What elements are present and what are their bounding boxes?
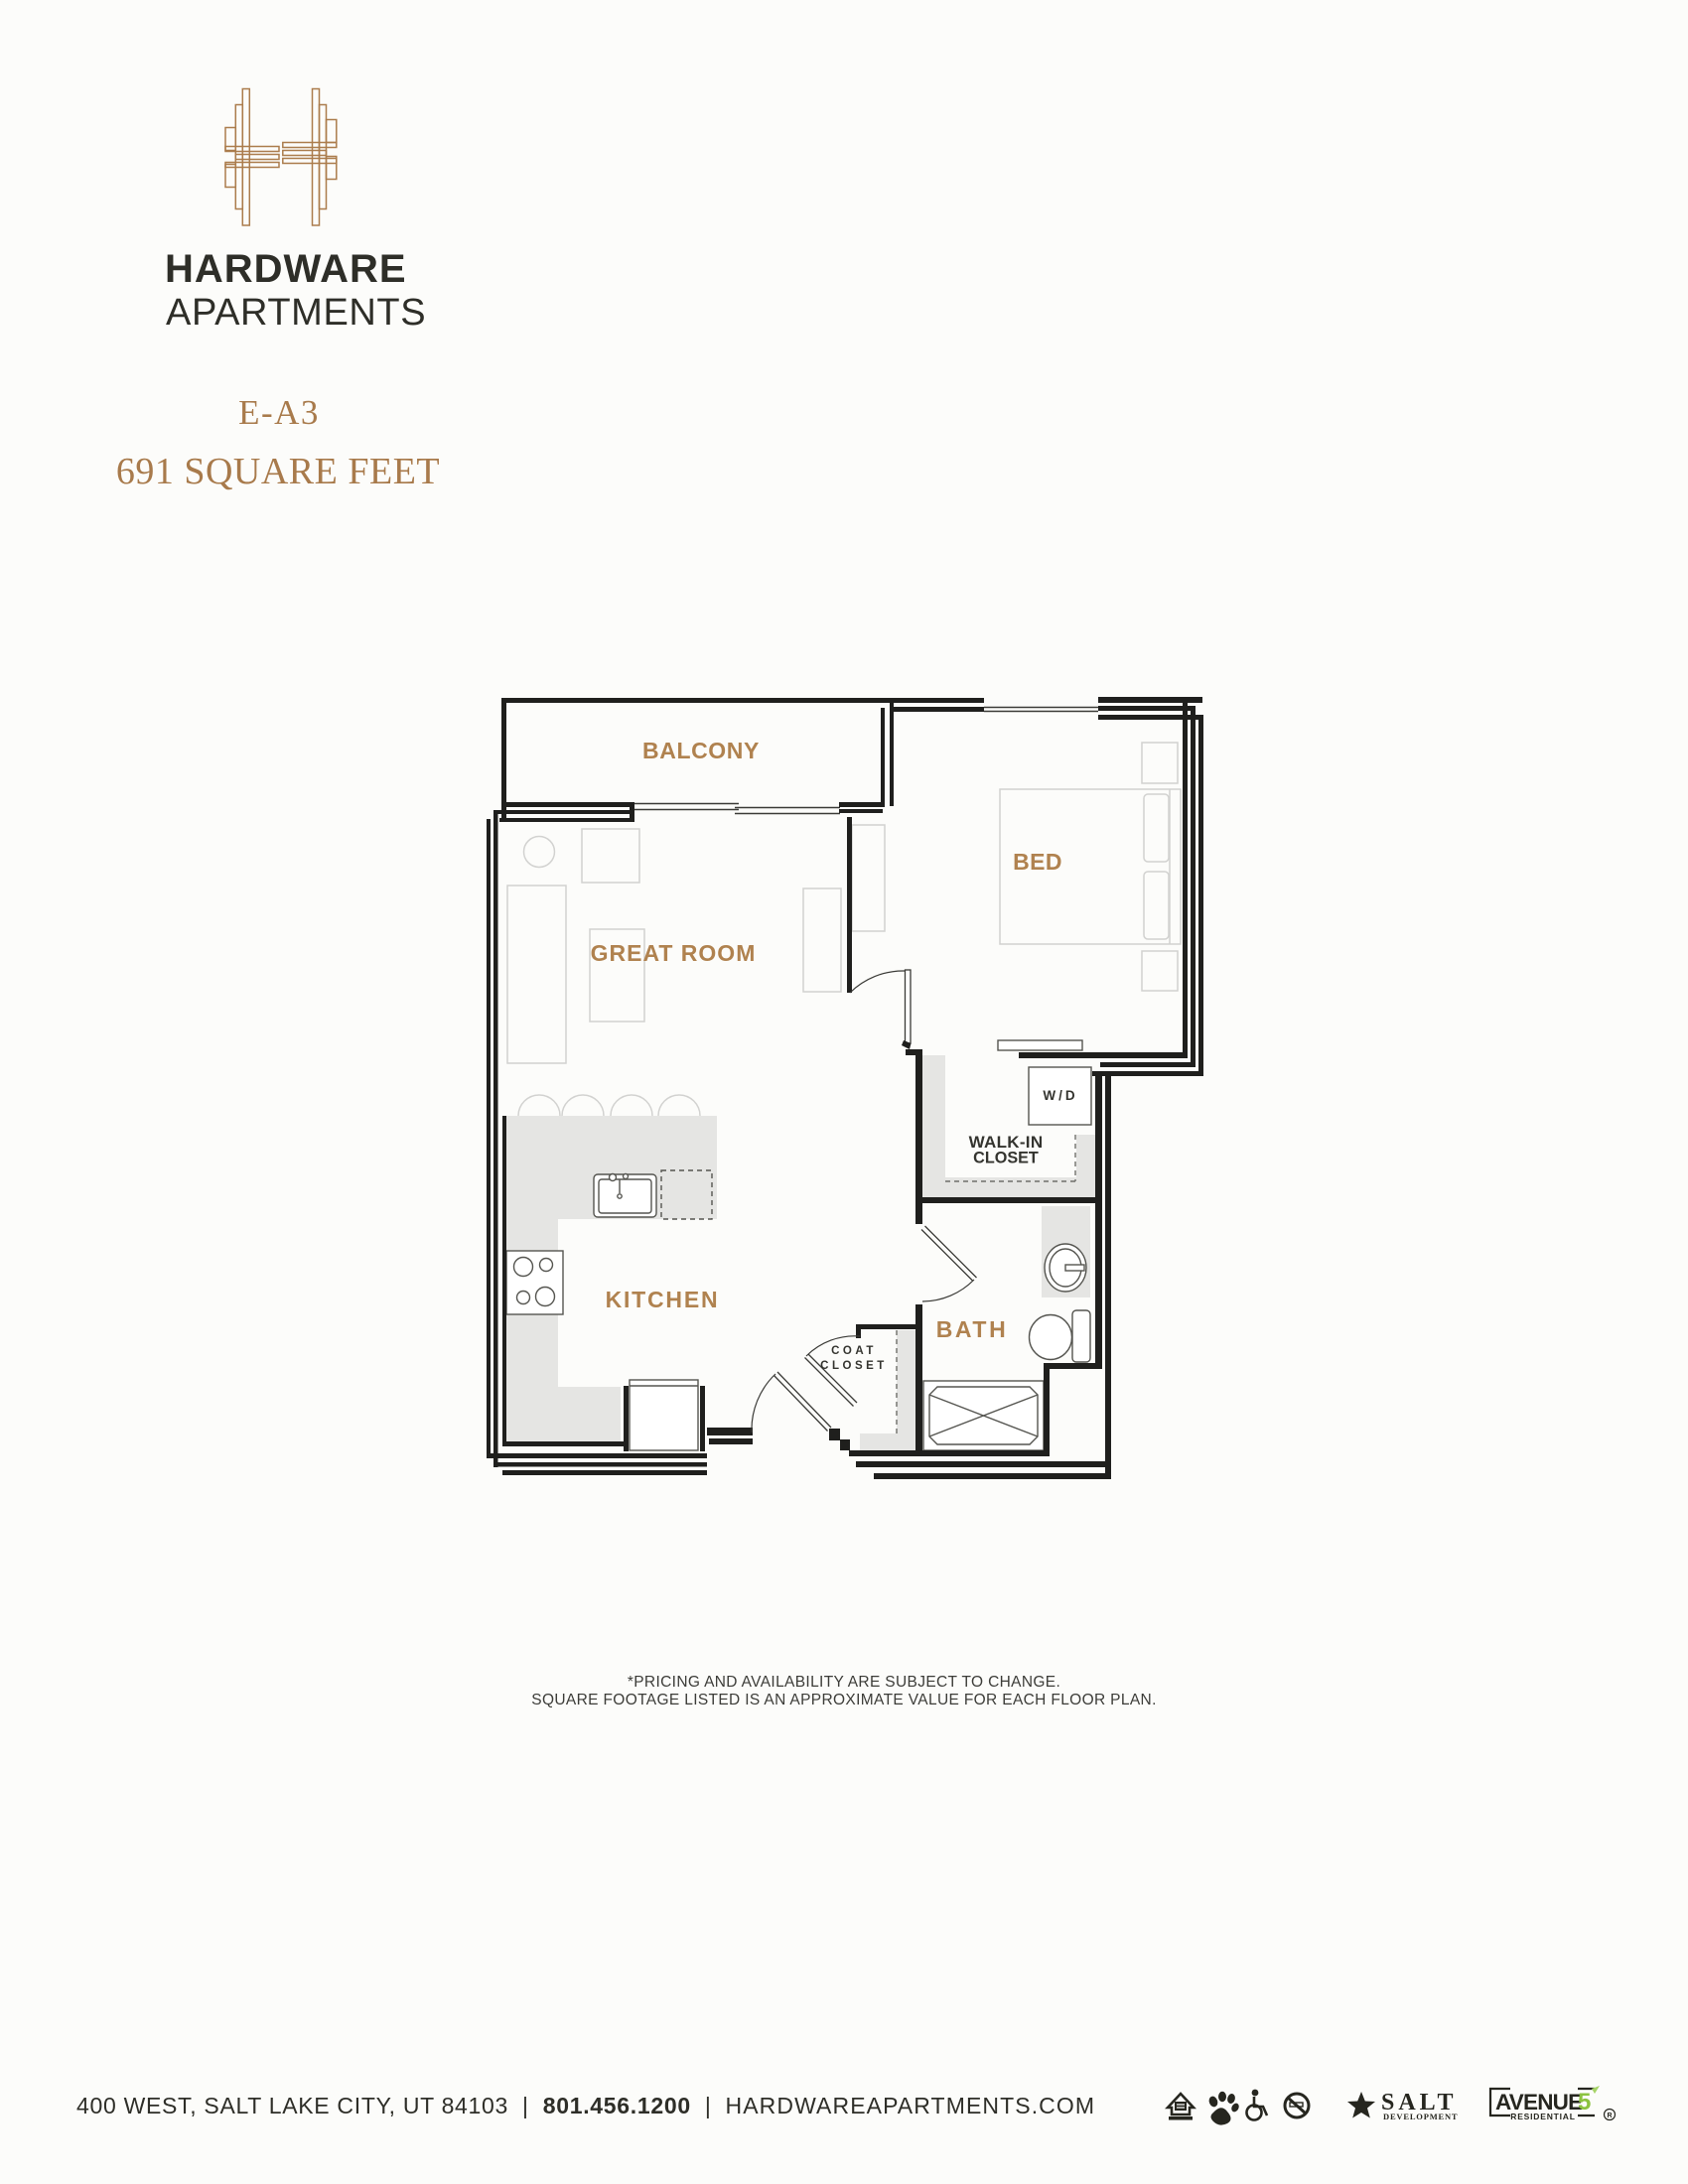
svg-text:691 SQUARE FEET: 691 SQUARE FEET bbox=[116, 451, 440, 492]
svg-text:W/D: W/D bbox=[1043, 1088, 1077, 1103]
svg-text:RESIDENTIAL: RESIDENTIAL bbox=[1510, 2112, 1575, 2121]
svg-text:HARDWARE: HARDWARE bbox=[165, 247, 407, 291]
svg-text:BATH: BATH bbox=[936, 1316, 1009, 1342]
svg-text:APARTMENTS: APARTMENTS bbox=[166, 292, 426, 334]
svg-text:E-A3: E-A3 bbox=[238, 393, 320, 432]
svg-text:400 WEST, SALT LAKE CITY, UT 8: 400 WEST, SALT LAKE CITY, UT 84103|801.4… bbox=[76, 2093, 1095, 2118]
svg-text:CLOSET: CLOSET bbox=[820, 1360, 888, 1372]
svg-text:BED: BED bbox=[1013, 849, 1062, 875]
svg-text:SQUARE FOOTAGE LISTED IS AN AP: SQUARE FOOTAGE LISTED IS AN APPROXIMATE … bbox=[531, 1692, 1156, 1708]
svg-text:CLOSET: CLOSET bbox=[973, 1150, 1039, 1167]
svg-text:KITCHEN: KITCHEN bbox=[606, 1287, 720, 1312]
svg-text:*PRICING AND AVAILABILITY ARE: *PRICING AND AVAILABILITY ARE SUBJECT TO… bbox=[628, 1674, 1060, 1691]
svg-text:5: 5 bbox=[1578, 2089, 1591, 2116]
svg-text:R: R bbox=[1607, 2113, 1612, 2119]
svg-text:GREAT ROOM: GREAT ROOM bbox=[591, 940, 757, 966]
svg-text:COAT: COAT bbox=[831, 1345, 877, 1357]
svg-text:DEVELOPMENT: DEVELOPMENT bbox=[1383, 2112, 1458, 2121]
svg-text:BALCONY: BALCONY bbox=[642, 738, 760, 763]
